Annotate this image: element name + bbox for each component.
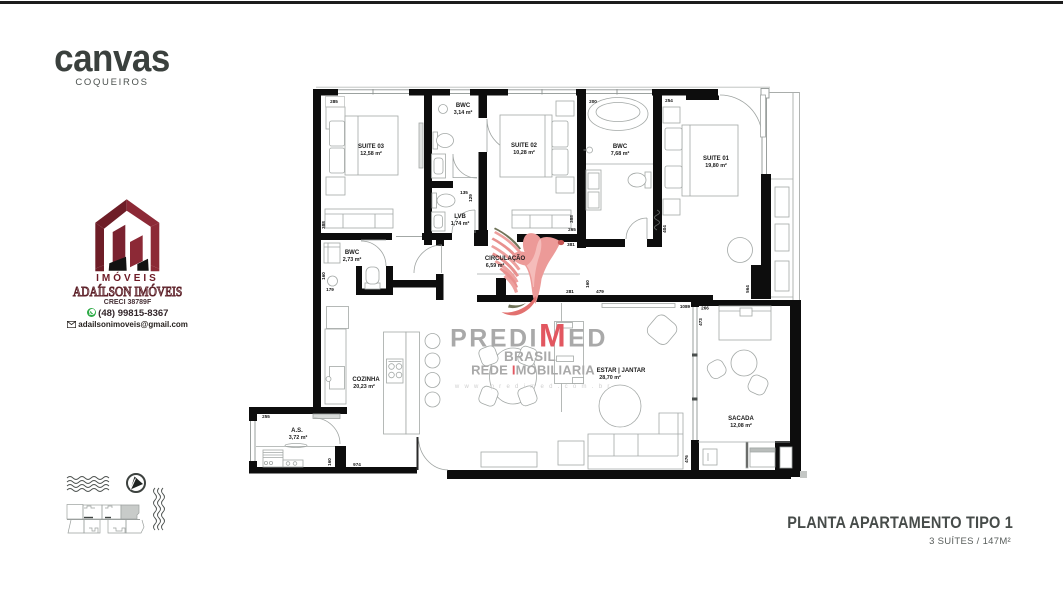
svg-text:200: 200 (589, 99, 597, 104)
svg-text:1,74 m²: 1,74 m² (451, 221, 470, 227)
svg-text:3,72 m²: 3,72 m² (289, 435, 308, 441)
svg-text:179: 179 (326, 287, 334, 292)
svg-text:BWC: BWC (456, 103, 471, 109)
svg-text:BWC: BWC (345, 250, 360, 256)
svg-text:3,14 m²: 3,14 m² (454, 110, 473, 116)
svg-text:473: 473 (698, 318, 703, 326)
svg-text:SUITE 01: SUITE 01 (703, 156, 730, 162)
svg-text:7,68 m²: 7,68 m² (611, 151, 630, 157)
svg-text:160: 160 (321, 272, 326, 280)
svg-text:12,58 m²: 12,58 m² (360, 151, 382, 157)
svg-text:265: 265 (568, 227, 576, 232)
svg-text:A.S.: A.S. (291, 428, 303, 434)
svg-text:SUITE 02: SUITE 02 (511, 143, 538, 149)
svg-text:BWC: BWC (613, 144, 628, 150)
svg-text:6,59 m²: 6,59 m² (486, 263, 505, 269)
svg-text:2,73 m²: 2,73 m² (343, 257, 362, 263)
svg-text:281: 281 (566, 289, 574, 294)
svg-text:ESTAR | JANTAR: ESTAR | JANTAR (597, 368, 646, 374)
svg-text:255: 255 (262, 414, 270, 419)
svg-text:w w w . p r e d i m e d . c o: w w w . p r e d i m e d . c o m . b r (454, 384, 611, 390)
svg-text:19,80 m²: 19,80 m² (705, 163, 727, 169)
svg-text:SUITE 03: SUITE 03 (358, 144, 385, 150)
svg-text:REDE IMOBILIARIA: REDE IMOBILIARIA (471, 363, 595, 378)
svg-text:285: 285 (330, 99, 338, 104)
svg-text:404: 404 (662, 225, 667, 233)
svg-text:10,28 m²: 10,28 m² (513, 150, 535, 156)
svg-text:12,08 m²: 12,08 m² (730, 423, 752, 429)
svg-text:388: 388 (321, 221, 326, 229)
svg-text:SACADA: SACADA (728, 416, 754, 422)
svg-text:381: 381 (567, 242, 575, 247)
svg-text:388: 388 (569, 215, 574, 223)
svg-text:LVB: LVB (454, 214, 466, 220)
svg-text:476: 476 (684, 455, 689, 463)
svg-text:479: 479 (596, 289, 604, 294)
svg-text:COZINHA: COZINHA (352, 377, 380, 383)
svg-text:160: 160 (585, 280, 590, 288)
svg-text:20,23 m²: 20,23 m² (353, 384, 375, 390)
svg-text:28,70 m²: 28,70 m² (599, 375, 621, 381)
svg-text:254: 254 (665, 98, 673, 103)
svg-text:974: 974 (353, 462, 361, 467)
svg-text:1089: 1089 (680, 304, 691, 309)
svg-text:266: 266 (701, 306, 709, 311)
svg-text:CIRCULAÇÃO: CIRCULAÇÃO (485, 255, 526, 262)
svg-text:129: 129 (468, 194, 473, 202)
svg-text:160: 160 (327, 458, 332, 466)
svg-text:564: 564 (745, 285, 750, 293)
